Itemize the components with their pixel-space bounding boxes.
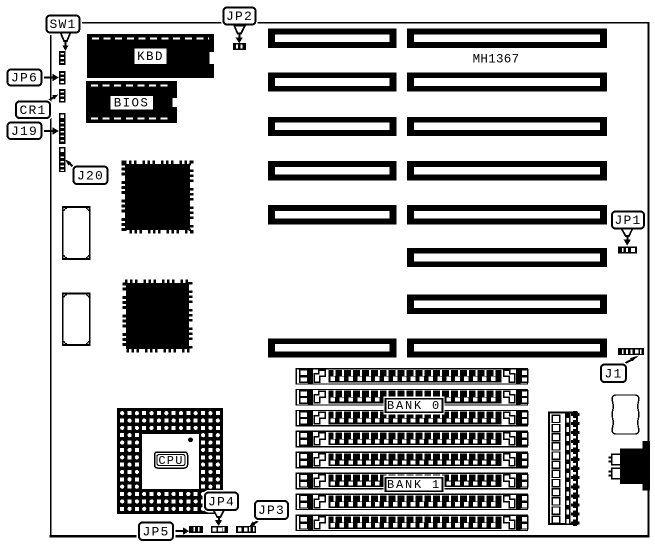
svg-text:JP2: JP2: [226, 9, 253, 24]
svg-text:J20: J20: [77, 168, 104, 183]
svg-text:JP5: JP5: [142, 524, 169, 539]
svg-text:JP3: JP3: [258, 503, 285, 518]
svg-text:J1: J1: [604, 366, 622, 381]
svg-text:BIOS: BIOS: [114, 96, 150, 110]
svg-text:CPU: CPU: [158, 454, 183, 468]
svg-text:JP4: JP4: [208, 494, 235, 509]
svg-text:JP6: JP6: [11, 71, 38, 86]
svg-text:J19: J19: [11, 124, 38, 139]
svg-text:MH1367: MH1367: [473, 53, 520, 67]
svg-text:BANK 0: BANK 0: [387, 399, 441, 413]
svg-text:JP1: JP1: [614, 213, 641, 228]
svg-text:CR1: CR1: [19, 103, 46, 118]
svg-text:KBD: KBD: [137, 50, 164, 64]
svg-text:SW1: SW1: [49, 17, 76, 32]
svg-text:BANK 1: BANK 1: [387, 478, 441, 492]
